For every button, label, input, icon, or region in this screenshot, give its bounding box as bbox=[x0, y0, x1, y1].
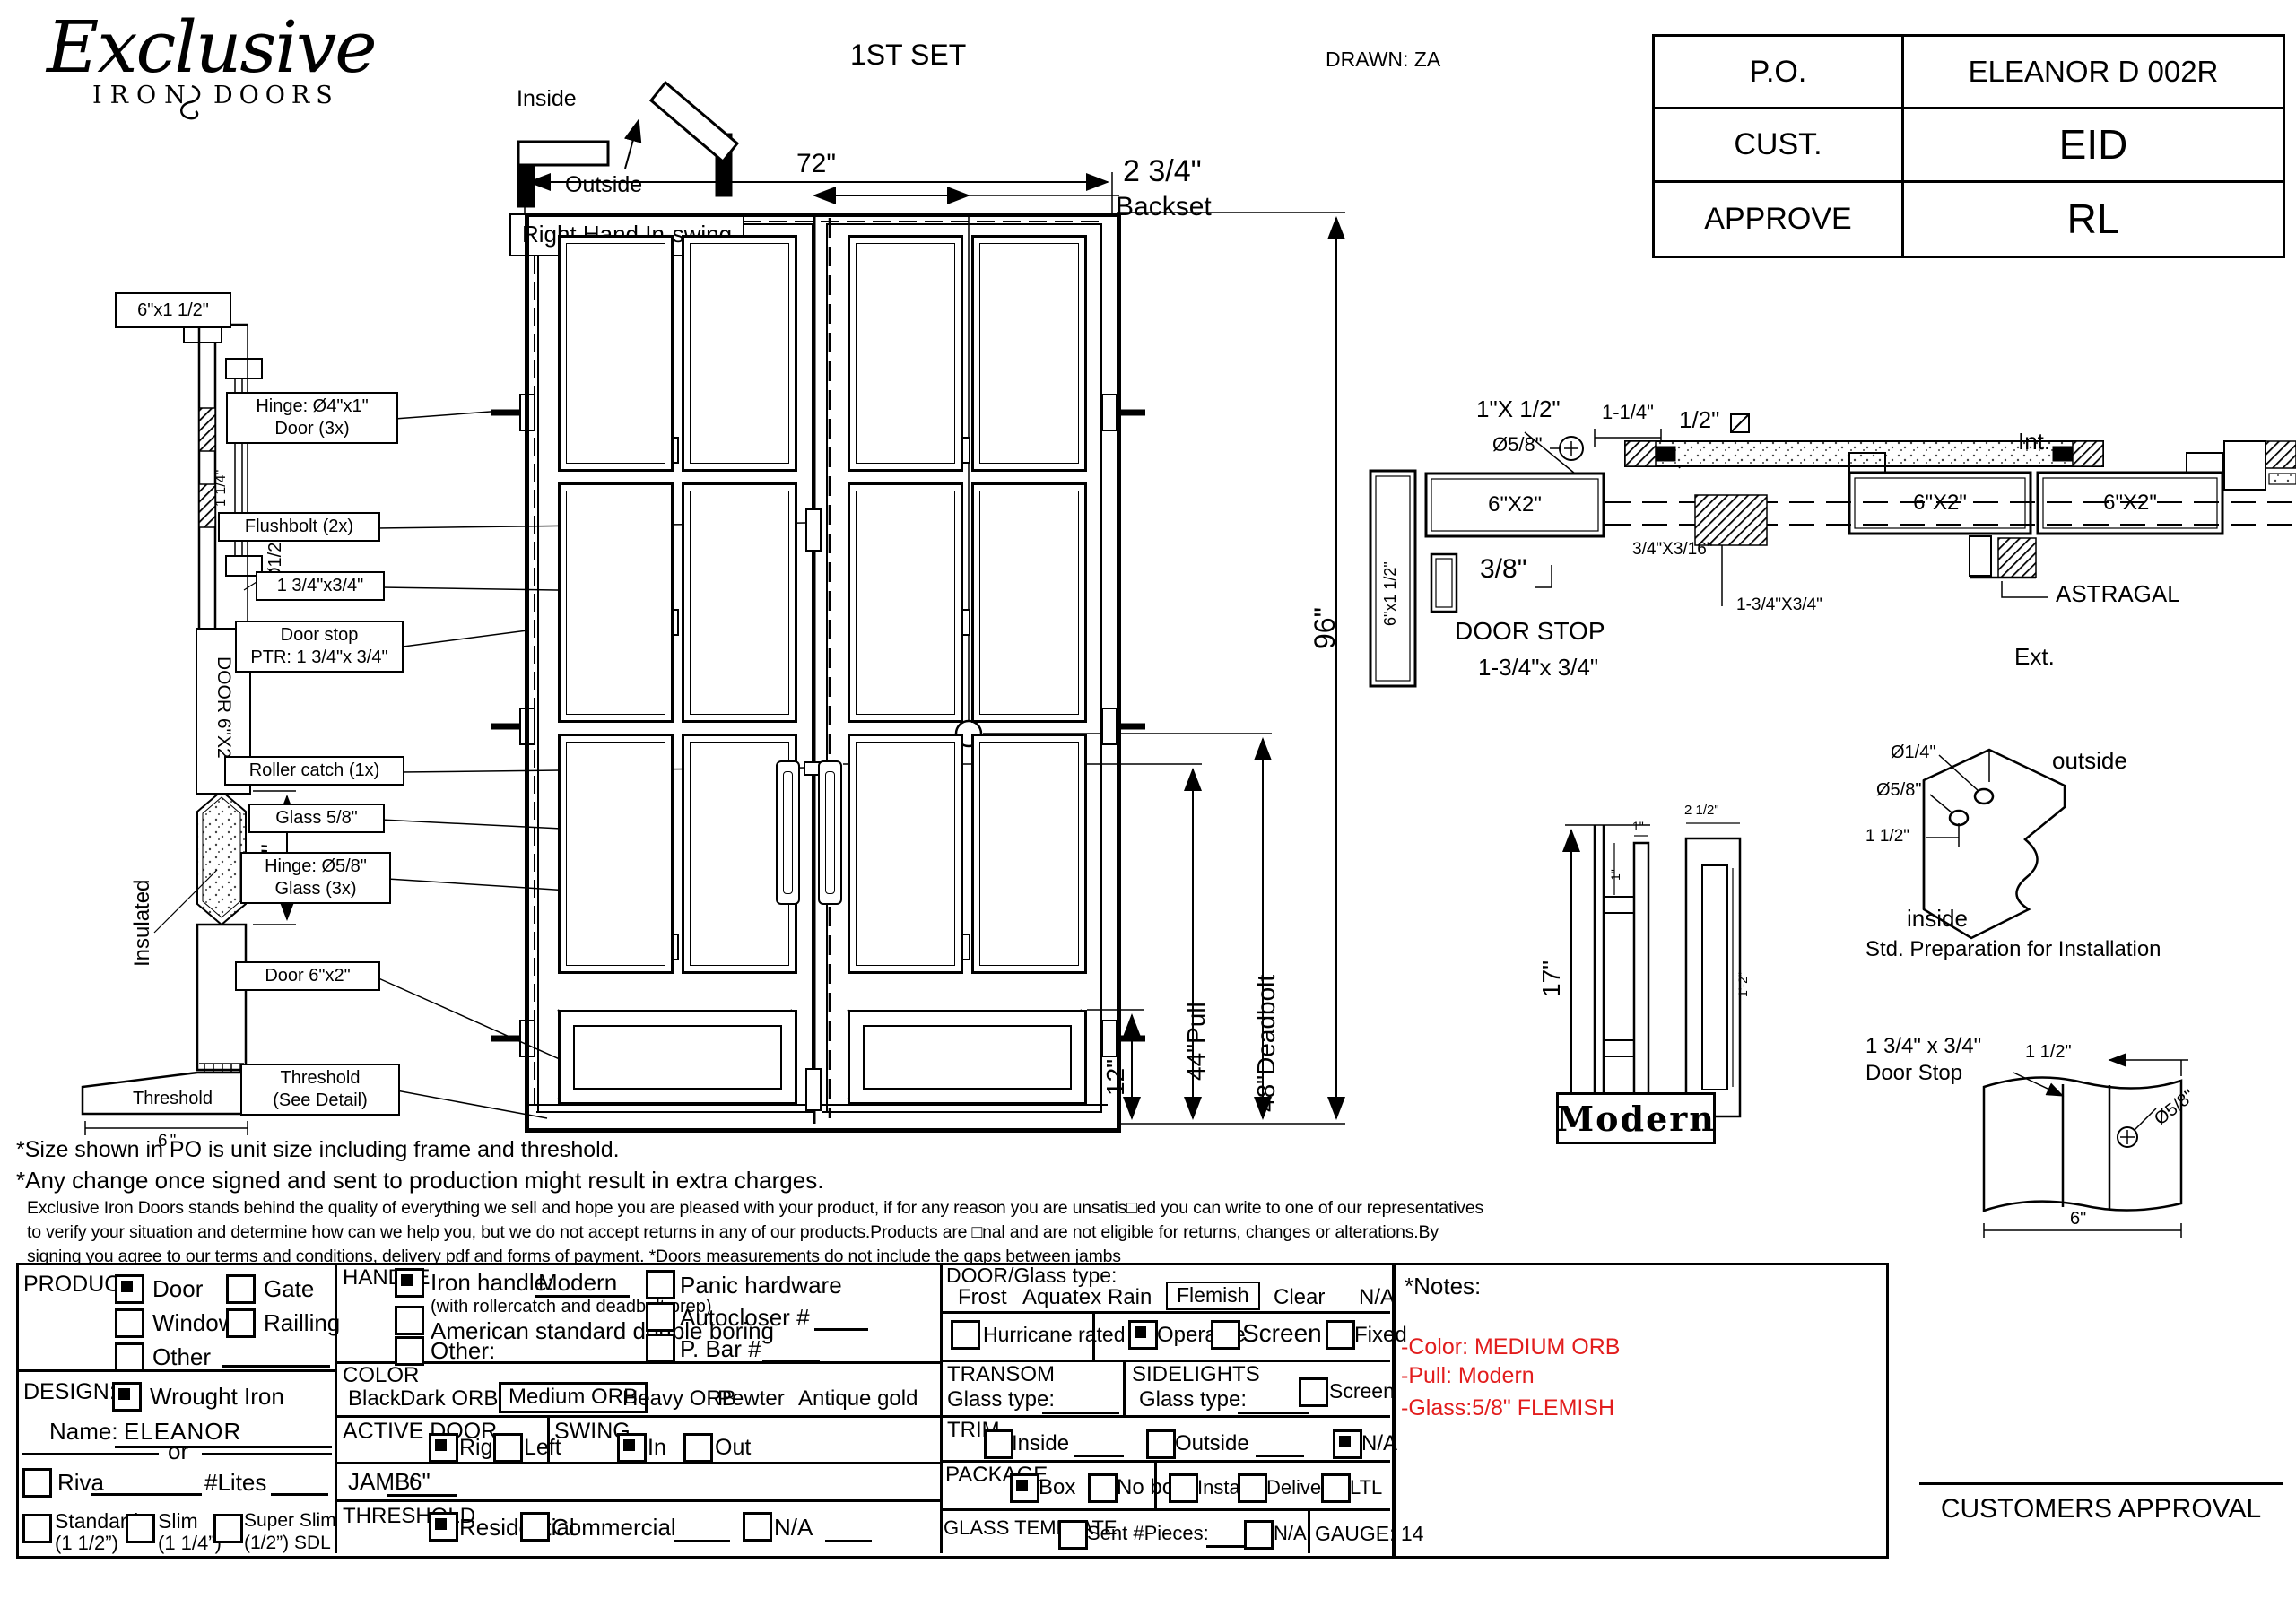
pbar-blank[interactable] bbox=[762, 1360, 820, 1362]
railling-label: Railling bbox=[264, 1310, 340, 1336]
plan-dim-114: 1-1/4" bbox=[1602, 402, 1654, 424]
prep-dia-big: Ø5/8" bbox=[1876, 780, 1921, 800]
gate-label: Gate bbox=[264, 1276, 314, 1302]
drawing-sheet: Exclusive IRON DOORS 1ST SET DRAWN: ZA P… bbox=[0, 0, 2296, 1616]
po-label: P.O. bbox=[1655, 37, 1904, 109]
checkbox-autocloser[interactable] bbox=[646, 1302, 675, 1332]
stop-dim-width: 6" bbox=[2070, 1209, 2086, 1229]
door-label: Door bbox=[152, 1276, 203, 1302]
commercial-label: Commercial bbox=[552, 1515, 676, 1541]
form-or-line bbox=[22, 1453, 159, 1455]
disclaimer-line2: *Any change once signed and sent to prod… bbox=[16, 1168, 823, 1194]
color-dark-orb[interactable]: Dark ORB bbox=[400, 1387, 498, 1412]
design-title: DESIGN: bbox=[23, 1379, 116, 1404]
plan-leaf-left-text: 6"X2" bbox=[1913, 491, 1967, 516]
disclaimer-line1: *Size shown in PO is unit size including… bbox=[16, 1137, 620, 1162]
callout-threshold: Threshold (See Detail) bbox=[240, 1064, 400, 1116]
super-slim-size: (1/2”) SDL bbox=[244, 1533, 331, 1554]
callout-line: Door (3x) bbox=[233, 418, 391, 440]
plan-leaf-right-text: 6"X2" bbox=[2103, 491, 2157, 516]
glass-panel bbox=[848, 734, 963, 974]
plan-leaf-right: 6"X2" bbox=[2038, 473, 2222, 534]
trim-inside-blank[interactable] bbox=[1074, 1455, 1124, 1457]
glass-panel bbox=[971, 235, 1087, 472]
form-divider bbox=[335, 1361, 940, 1364]
glass-panel bbox=[682, 482, 797, 723]
callout-line: Hinge: Ø5/8" bbox=[248, 856, 384, 878]
product-other-blank[interactable] bbox=[222, 1365, 330, 1368]
plan-int-label: Int. bbox=[2018, 429, 2050, 455]
note-color: -Color: MEDIUM ORB bbox=[1401, 1334, 1620, 1360]
checkbox-trim-na[interactable] bbox=[1333, 1429, 1362, 1459]
standard-size: (1 1/2”) bbox=[55, 1533, 118, 1555]
transom-glass-blank[interactable] bbox=[1042, 1412, 1119, 1414]
checkbox-window[interactable] bbox=[115, 1308, 144, 1338]
handle-other-label: Other: bbox=[430, 1338, 495, 1364]
checkbox-product-other[interactable] bbox=[115, 1342, 144, 1372]
pull-dim-length: 1'-2" bbox=[1736, 972, 1751, 997]
plan-dim-1x: 1"X 1/2" bbox=[1476, 396, 1561, 422]
callout-line: Flushbolt (2x) bbox=[225, 516, 373, 538]
raised-panel bbox=[558, 1010, 797, 1105]
threshold-na-blank[interactable] bbox=[825, 1540, 872, 1542]
wrought-iron-label: Wrought Iron bbox=[150, 1384, 284, 1410]
glass-panel bbox=[848, 482, 963, 723]
checkbox-delivery[interactable] bbox=[1238, 1473, 1267, 1503]
checkbox-active-right[interactable] bbox=[429, 1433, 458, 1463]
lites-label: #Lites bbox=[204, 1470, 266, 1496]
callout-hinge-door: Hinge: Ø4"x1" Door (3x) bbox=[226, 392, 398, 444]
pull-handle bbox=[776, 760, 800, 905]
checkbox-threshold-na[interactable] bbox=[743, 1512, 772, 1542]
callout-door-stop: Door stop PTR: 1 3/4"x 3/4" bbox=[235, 621, 404, 673]
checkbox-active-left[interactable] bbox=[493, 1433, 523, 1463]
checkbox-operable[interactable] bbox=[1128, 1320, 1158, 1350]
pull-handle bbox=[818, 760, 842, 905]
stop-label-size: 1 3/4" x 3/4" bbox=[1865, 1035, 1981, 1059]
checkbox-panic-hardware[interactable] bbox=[646, 1270, 675, 1299]
transom-glass-label: Glass type: bbox=[947, 1388, 1055, 1412]
glass-panel bbox=[558, 482, 674, 723]
checkbox-standard[interactable] bbox=[22, 1514, 52, 1543]
checkbox-trim-outside[interactable] bbox=[1146, 1429, 1176, 1459]
drawn-by-label: DRAWN: ZA bbox=[1326, 48, 1440, 72]
dim-deadbolt: 48"Deadbolt bbox=[1252, 975, 1280, 1112]
super-slim-label: Super Slim bbox=[244, 1510, 336, 1532]
side-insulated-label: Insulated bbox=[131, 880, 155, 967]
callout-door-size: Door 6"x2" bbox=[235, 961, 380, 991]
glass-clear[interactable]: Clear bbox=[1274, 1286, 1325, 1310]
commercial-blank[interactable] bbox=[674, 1540, 730, 1542]
backset-label: Backset bbox=[1116, 192, 1212, 222]
callout-mullion-size: 1 3/4"x3/4" bbox=[256, 571, 385, 601]
checkbox-wrought-iron[interactable] bbox=[112, 1382, 142, 1412]
glass-flemish-selected[interactable]: Flemish bbox=[1166, 1282, 1260, 1310]
prep-dim: 1 1/2" bbox=[1865, 827, 1909, 846]
prep-outside-label: outside bbox=[2052, 748, 2127, 774]
pull-dim-one-a: 1" bbox=[1609, 869, 1623, 881]
form-divider bbox=[335, 1415, 940, 1418]
callout-line: Door 6"x2" bbox=[242, 965, 373, 987]
swing-inside-label: Inside bbox=[517, 86, 577, 111]
plan-astragal-label: ASTRAGAL bbox=[2056, 581, 2180, 607]
checkbox-ltl[interactable] bbox=[1321, 1473, 1351, 1503]
window-label: Window bbox=[152, 1310, 235, 1336]
dim-height: 96" bbox=[1309, 607, 1342, 649]
product-other-label: Other bbox=[152, 1344, 211, 1370]
po-value: ELEANOR D 002R bbox=[1904, 37, 2283, 109]
callout-line: Roller catch (1x) bbox=[231, 760, 397, 782]
checkbox-handle-other[interactable] bbox=[395, 1336, 424, 1366]
approval-signature-line[interactable] bbox=[1919, 1482, 2283, 1485]
pull-detail-lines bbox=[1565, 823, 1740, 1130]
checkbox-riva[interactable] bbox=[22, 1468, 52, 1498]
glass-panel bbox=[971, 734, 1087, 974]
riva-label: Riva bbox=[57, 1470, 104, 1496]
callout-line: Glass 5/8" bbox=[256, 807, 378, 830]
plan-head-text: 6"X2" bbox=[1488, 493, 1542, 517]
plan-dim-half: 1/2" bbox=[1679, 407, 1719, 433]
checkbox-door[interactable] bbox=[115, 1274, 144, 1304]
glass-panel bbox=[682, 235, 797, 472]
prep-dia-small: Ø1/4" bbox=[1891, 743, 1935, 762]
jamb-title: JAMB: bbox=[348, 1469, 417, 1495]
threshold-na-label: N/A bbox=[774, 1515, 813, 1541]
color-title: COLOR bbox=[343, 1364, 419, 1388]
sent-pieces-label: Sent #Pieces: bbox=[1087, 1523, 1209, 1545]
checkbox-super-slim[interactable] bbox=[213, 1514, 243, 1543]
transom-title: TRANSOM bbox=[947, 1363, 1055, 1387]
form-divider bbox=[940, 1508, 1390, 1511]
checkbox-iron-handle[interactable] bbox=[395, 1268, 424, 1298]
note-glass: -Glass:5/8" FLEMISH bbox=[1401, 1395, 1614, 1421]
glass-frost[interactable]: Frost bbox=[958, 1286, 1007, 1310]
prep-inside-label: inside bbox=[1907, 906, 1968, 932]
dim-bottom: 12" bbox=[1101, 1059, 1129, 1096]
side-door-label: DOOR 6"X2" bbox=[213, 656, 234, 765]
hurricane-label: Hurricane rated bbox=[983, 1324, 1126, 1347]
plan-dim-dia58: Ø5/8" bbox=[1492, 434, 1543, 456]
trim-outside-blank[interactable] bbox=[1256, 1455, 1304, 1457]
riva-blank[interactable] bbox=[91, 1493, 202, 1496]
plan-dim-134: 1-3/4"X3/4" bbox=[1736, 595, 1822, 614]
side-frame-label: 6"x1 1/2" bbox=[137, 300, 209, 321]
swing-in-label: In bbox=[648, 1435, 666, 1460]
slim-label: Slim bbox=[158, 1510, 198, 1533]
checkbox-railling[interactable] bbox=[226, 1308, 256, 1338]
plan-jamb-label: 6"x1 1/2" bbox=[1381, 561, 1399, 626]
pull-name: Modern bbox=[1556, 1099, 1716, 1139]
callout-line: PTR: 1 3/4"x 3/4" bbox=[242, 647, 396, 669]
raised-panel bbox=[848, 1010, 1087, 1105]
lites-blank[interactable] bbox=[271, 1493, 328, 1496]
autocloser-blank[interactable] bbox=[814, 1328, 868, 1331]
glass-aquatex[interactable]: Aquatex bbox=[1022, 1286, 1101, 1310]
design-or-label: or bbox=[168, 1438, 188, 1464]
template-na-label: N/A bbox=[1274, 1523, 1307, 1545]
callout-line: Threshold bbox=[248, 1067, 393, 1090]
iron-handle-value[interactable]: Modern bbox=[538, 1270, 617, 1296]
glass-type-title: DOOR/Glass type: bbox=[946, 1264, 1117, 1288]
pull-dim-width: 2 1/2" bbox=[1684, 804, 1719, 819]
approve-label: APPROVE bbox=[1655, 183, 1904, 256]
form-divider bbox=[940, 1415, 1390, 1418]
callout-line: (See Detail) bbox=[248, 1090, 393, 1112]
dim-pull: 44"Pull bbox=[1182, 1002, 1210, 1081]
po-table: P.O. ELEANOR D 002R CUST. EID APPROVE RL bbox=[1652, 34, 2285, 258]
glass-na[interactable]: N/A bbox=[1359, 1286, 1395, 1310]
side-threshold-label: Threshold bbox=[133, 1089, 213, 1108]
form-divider bbox=[1308, 1508, 1310, 1553]
color-black[interactable]: Black bbox=[348, 1387, 401, 1412]
checkbox-screen-or[interactable] bbox=[1211, 1320, 1240, 1350]
plan-door-stop-size: 1-3/4"x 3/4" bbox=[1478, 655, 1598, 681]
checkbox-box[interactable] bbox=[1010, 1473, 1039, 1503]
logo-word-iron: IRON bbox=[92, 83, 194, 109]
sidelights-glass-blank[interactable] bbox=[1238, 1412, 1309, 1414]
design-name-label: Name: bbox=[49, 1419, 118, 1445]
color-pewter[interactable]: Pewter bbox=[717, 1387, 785, 1412]
callout-flushbolt: Flushbolt (2x) bbox=[218, 512, 380, 542]
trim-inside-label: Inside bbox=[1012, 1432, 1069, 1456]
swing-out-label: Out bbox=[715, 1435, 751, 1460]
plan-dim-38: 3/8" bbox=[1480, 554, 1526, 585]
prep-caption: Std. Preparation for Installation bbox=[1865, 938, 2161, 962]
panic-hardware-label: Panic hardware bbox=[680, 1273, 842, 1299]
callout-line: 1 3/4"x3/4" bbox=[263, 575, 378, 597]
form-divider bbox=[335, 1499, 940, 1502]
checkbox-hurricane[interactable] bbox=[951, 1320, 980, 1350]
logo-word-doors: DOORS bbox=[213, 83, 339, 109]
callout-hinge-glass: Hinge: Ø5/8" Glass (3x) bbox=[240, 852, 391, 904]
glass-panel bbox=[971, 482, 1087, 723]
cust-label: CUST. bbox=[1655, 109, 1904, 182]
checkbox-trim-inside[interactable] bbox=[984, 1429, 1013, 1459]
callout-line: Hinge: Ø4"x1" bbox=[233, 395, 391, 418]
handle-other-blank[interactable] bbox=[502, 1361, 603, 1364]
box-label: Box bbox=[1039, 1476, 1075, 1500]
checkbox-swing-out[interactable] bbox=[683, 1433, 713, 1463]
checkbox-install[interactable] bbox=[1169, 1473, 1198, 1503]
side-section-lines bbox=[83, 325, 296, 1135]
pull-dim-one-b: 1" bbox=[1632, 820, 1644, 834]
stop-label-name: Door Stop bbox=[1865, 1062, 1962, 1086]
glass-panel bbox=[558, 235, 674, 472]
checkbox-slim[interactable] bbox=[126, 1514, 155, 1543]
trim-outside-label: Outside bbox=[1175, 1432, 1249, 1456]
design-name-line bbox=[115, 1446, 332, 1448]
checkbox-sent-pieces[interactable] bbox=[1058, 1520, 1088, 1550]
cust-value: EID bbox=[1904, 109, 2283, 182]
checkbox-pbar[interactable] bbox=[646, 1334, 675, 1363]
logo-script: Exclusive bbox=[47, 7, 376, 88]
backset-value: 2 3/4" bbox=[1123, 154, 1202, 188]
checkbox-template-na[interactable] bbox=[1244, 1520, 1274, 1550]
stop-dim-a: 1 1/2" bbox=[2025, 1042, 2072, 1062]
callout-glass: Glass 5/8" bbox=[248, 804, 385, 833]
checkbox-fixed[interactable] bbox=[1326, 1320, 1355, 1350]
ltl-label: LTL bbox=[1350, 1477, 1382, 1499]
glass-panel bbox=[558, 734, 674, 974]
approval-label: CUSTOMERS APPROVAL bbox=[1919, 1494, 2283, 1525]
checkbox-residential[interactable] bbox=[429, 1512, 458, 1542]
form-divider bbox=[940, 1311, 1390, 1314]
notes-title: *Notes: bbox=[1405, 1273, 1481, 1299]
checkbox-american-boring[interactable] bbox=[395, 1306, 424, 1335]
callout-roller-catch: Roller catch (1x) bbox=[224, 756, 404, 786]
pbar-label: P. Bar # bbox=[680, 1336, 761, 1362]
callout-line: Glass (3x) bbox=[248, 878, 384, 900]
color-antique-gold[interactable]: Antique gold bbox=[798, 1387, 918, 1412]
plan-dim-316: 3/4"X3/16" bbox=[1632, 540, 1713, 559]
dim-width: 72" bbox=[796, 149, 836, 179]
callout-line: Door stop bbox=[242, 624, 396, 647]
plan-door-stop-title: DOOR STOP bbox=[1455, 617, 1605, 645]
pull-name-box: Modern bbox=[1556, 1092, 1716, 1144]
iron-handle-label: Iron handle: bbox=[430, 1270, 553, 1296]
form-or-line bbox=[202, 1453, 332, 1455]
swing-outside-label: Outside bbox=[565, 172, 642, 197]
jamb-value[interactable]: 6" bbox=[409, 1469, 430, 1495]
checkbox-swing-in[interactable] bbox=[617, 1433, 647, 1463]
plan-head-label: 6"X2" bbox=[1426, 474, 1604, 536]
plan-leaf-left: 6"X2" bbox=[1849, 473, 2031, 534]
side-frame-label-box: 6"x1 1/2" bbox=[115, 292, 231, 328]
checkbox-nobox[interactable] bbox=[1088, 1473, 1118, 1503]
set-title: 1ST SET bbox=[850, 39, 966, 72]
slim-size: (1 1/4”) bbox=[158, 1533, 222, 1555]
sidelights-screen-label: Screen bbox=[1329, 1380, 1395, 1403]
note-pull: -Pull: Modern bbox=[1401, 1363, 1535, 1388]
plan-ext-label: Ext. bbox=[2014, 644, 2055, 670]
glass-rain[interactable]: Rain bbox=[1108, 1286, 1152, 1310]
pull-dim-height: 17" bbox=[1537, 960, 1565, 997]
approve-value: RL bbox=[1904, 183, 2283, 256]
glass-panel bbox=[848, 235, 963, 472]
checkbox-sidelights-screen[interactable] bbox=[1299, 1377, 1328, 1407]
form-divider bbox=[1123, 1360, 1126, 1415]
side-dim-114: 1 1/4" bbox=[213, 470, 230, 507]
checkbox-commercial[interactable] bbox=[520, 1512, 550, 1542]
sidelights-glass-label: Glass type: bbox=[1139, 1388, 1247, 1412]
checkbox-gate[interactable] bbox=[226, 1274, 256, 1304]
sidelights-title: SIDELIGHTS bbox=[1132, 1363, 1260, 1387]
autocloser-label: Autocloser # bbox=[680, 1305, 810, 1331]
disclaimer-paragraph: Exclusive Iron Doors stands behind the q… bbox=[27, 1196, 1489, 1269]
jamb-line bbox=[387, 1494, 457, 1497]
